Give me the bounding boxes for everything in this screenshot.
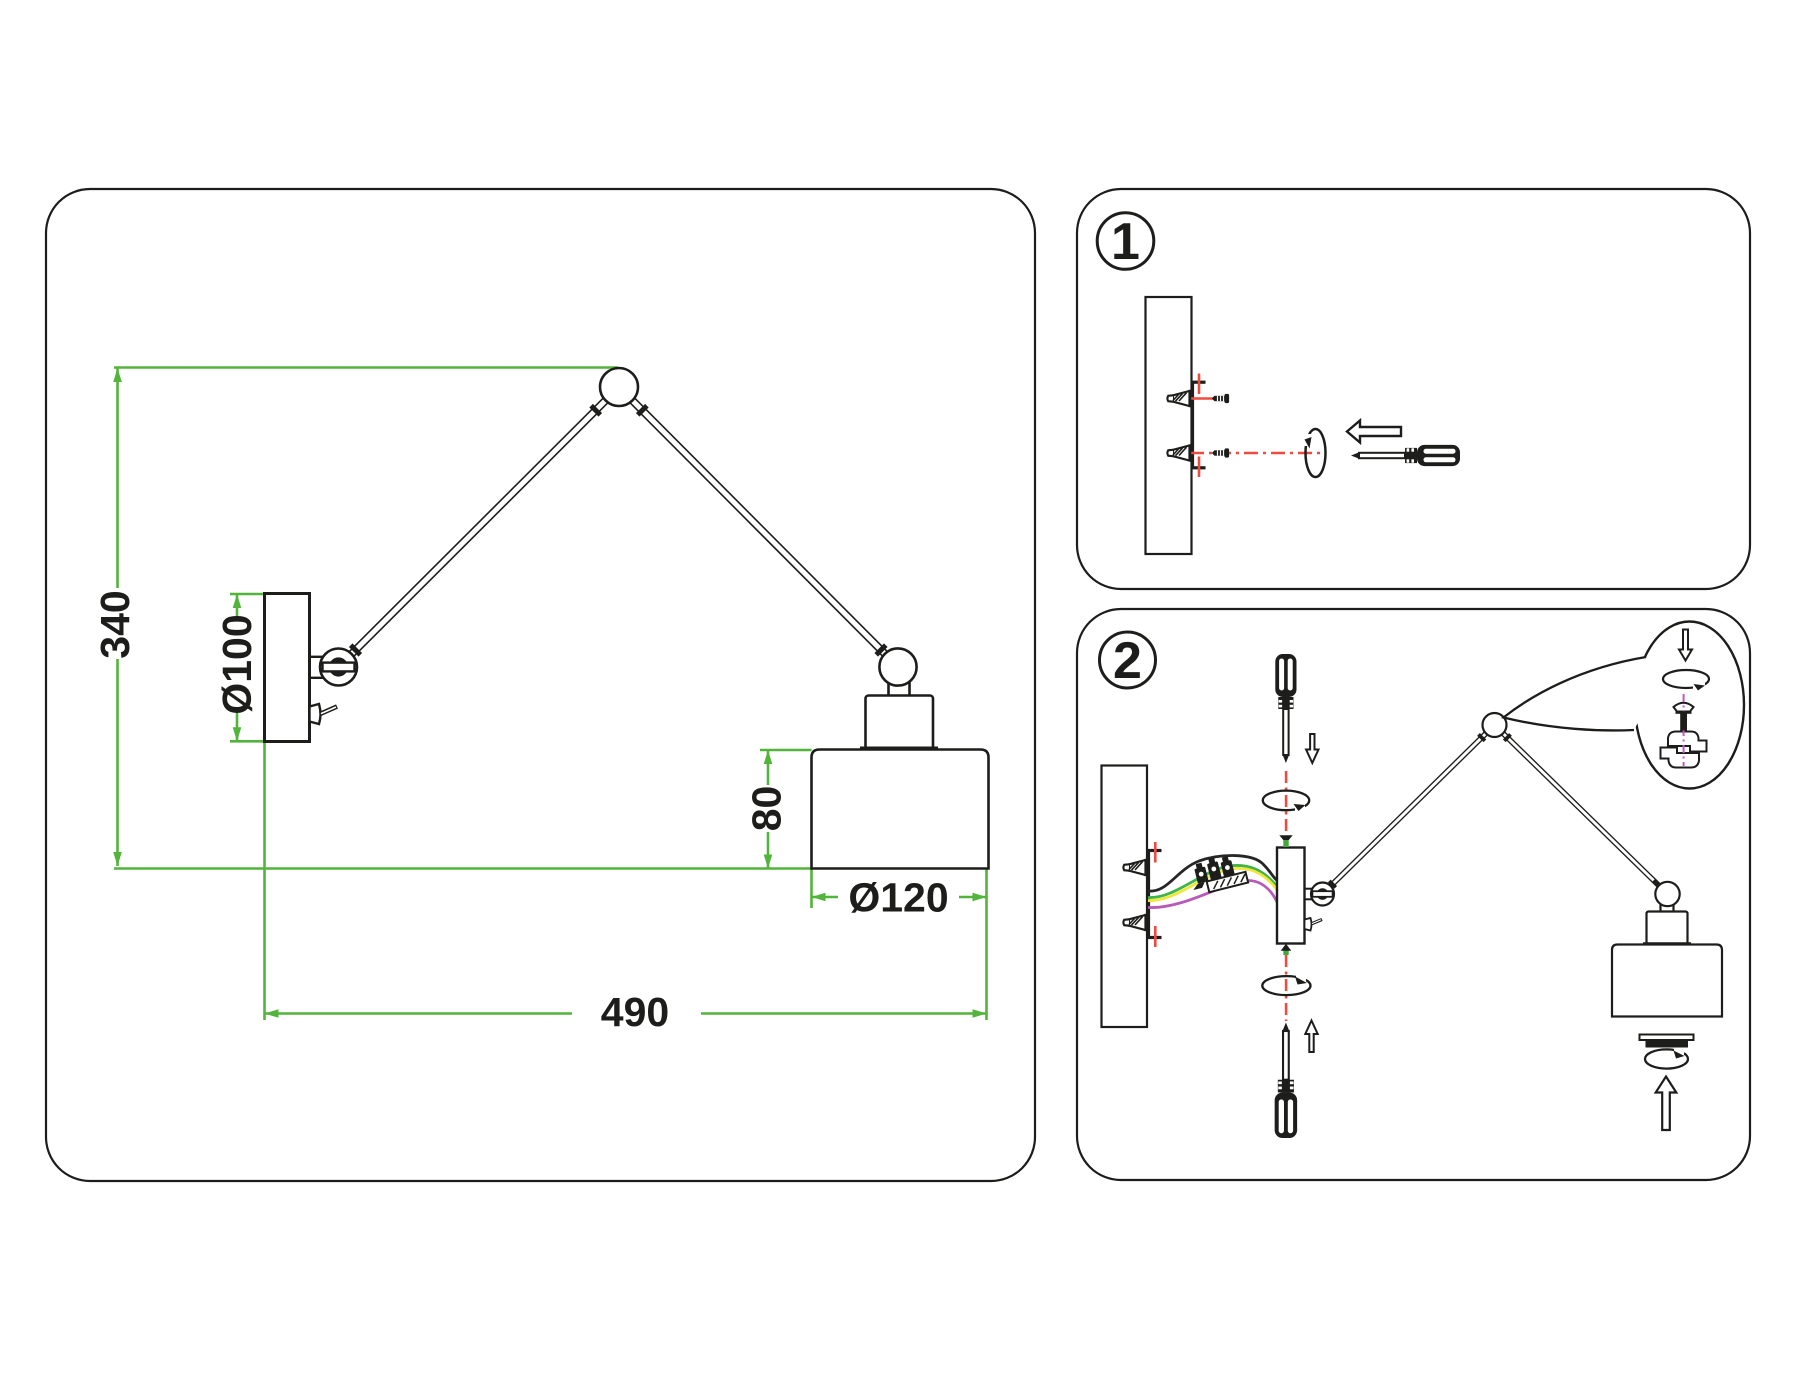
svg-text:490: 490 bbox=[601, 989, 669, 1035]
svg-text:Ø100: Ø100 bbox=[214, 614, 260, 714]
svg-text:80: 80 bbox=[744, 786, 790, 832]
svg-text:1: 1 bbox=[1111, 213, 1140, 271]
svg-text:Ø120: Ø120 bbox=[848, 875, 948, 921]
svg-text:340: 340 bbox=[92, 590, 138, 658]
svg-text:2: 2 bbox=[1113, 632, 1142, 690]
